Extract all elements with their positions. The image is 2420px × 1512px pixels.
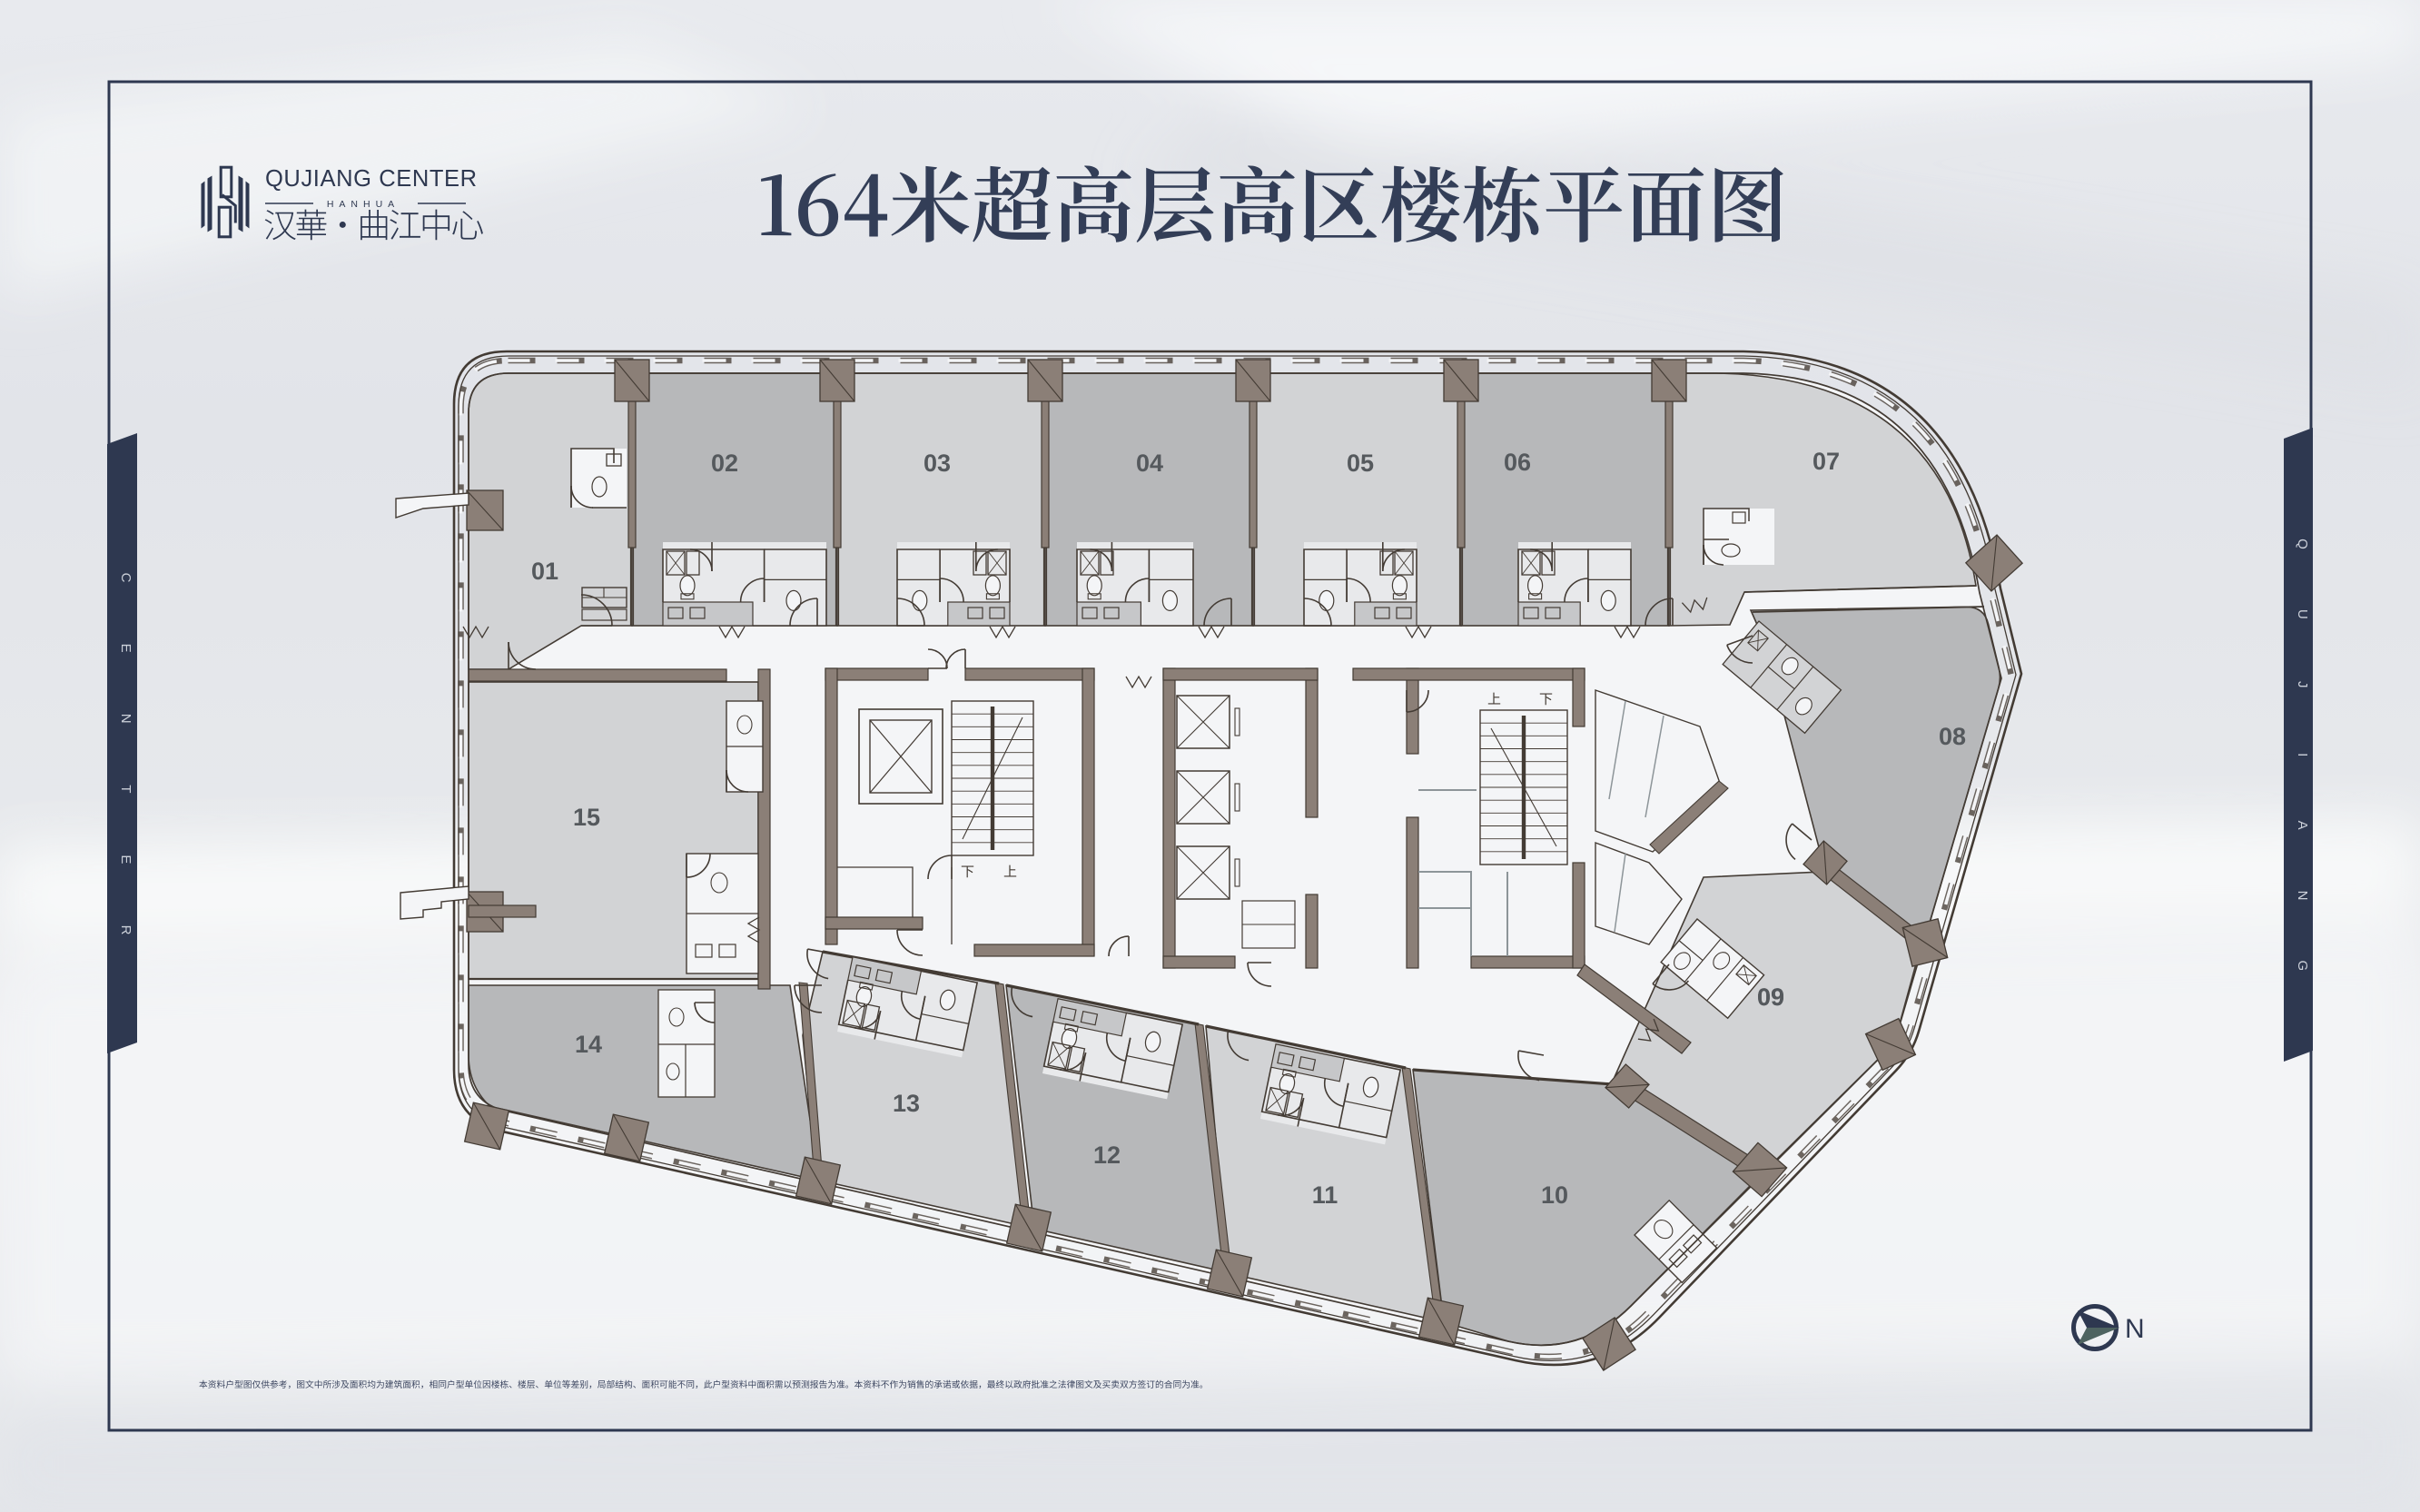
svg-text:T: T	[118, 785, 133, 793]
svg-text:15: 15	[573, 804, 600, 831]
svg-text:E: E	[118, 855, 133, 864]
svg-text:10: 10	[1541, 1181, 1568, 1209]
svg-text:J: J	[2295, 681, 2310, 688]
svg-text:12: 12	[1093, 1141, 1121, 1169]
svg-text:G: G	[2295, 961, 2310, 972]
svg-text:N: N	[2125, 1314, 2145, 1344]
svg-text:R: R	[118, 925, 133, 935]
svg-text:04: 04	[1136, 450, 1163, 477]
svg-text:C: C	[118, 573, 133, 583]
svg-text:U: U	[2295, 609, 2310, 619]
svg-text:06: 06	[1504, 449, 1531, 476]
svg-text:A: A	[2295, 821, 2310, 830]
svg-text:N: N	[2295, 891, 2310, 901]
svg-text:I: I	[2295, 753, 2310, 756]
svg-text:N: N	[118, 714, 133, 724]
svg-text:08: 08	[1939, 723, 1966, 750]
svg-text:05: 05	[1347, 450, 1374, 477]
svg-text:E: E	[118, 644, 133, 653]
svg-text:07: 07	[1813, 448, 1840, 475]
svg-text:03: 03	[924, 450, 951, 477]
svg-text:13: 13	[893, 1090, 920, 1117]
svg-text:09: 09	[1757, 983, 1784, 1011]
svg-text:14: 14	[575, 1031, 602, 1058]
svg-text:HANHUA: HANHUA	[327, 199, 400, 210]
svg-text:01: 01	[531, 558, 558, 585]
svg-text:02: 02	[711, 450, 738, 477]
svg-text:Q: Q	[2295, 539, 2310, 549]
svg-text:QUJIANG CENTER: QUJIANG CENTER	[265, 166, 478, 192]
svg-text:11: 11	[1312, 1181, 1338, 1209]
